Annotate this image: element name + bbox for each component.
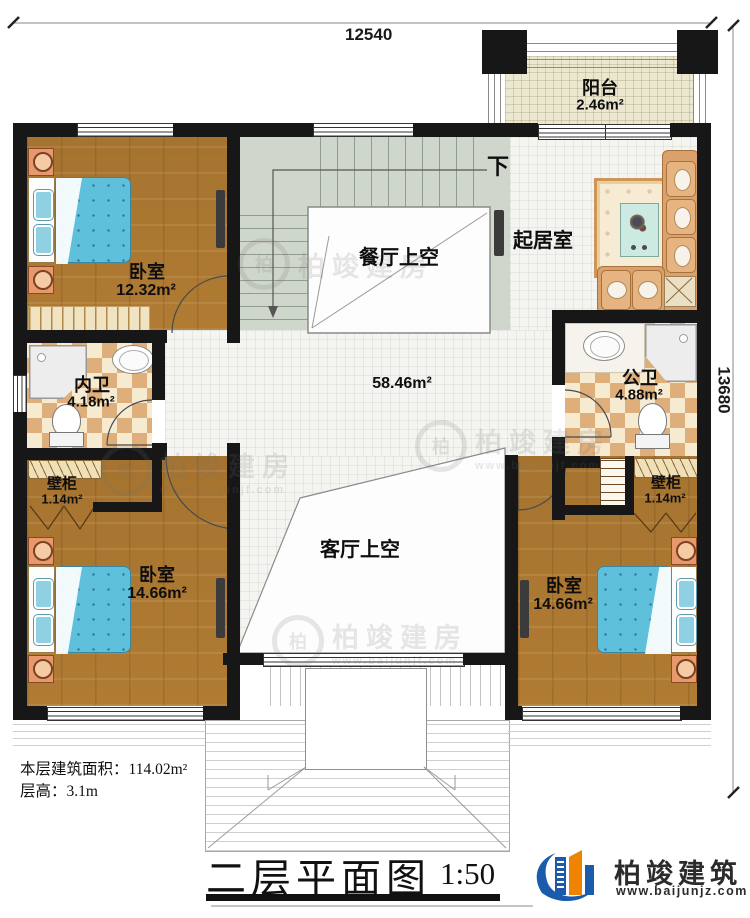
logo-tower-small [585, 865, 594, 895]
wall [680, 706, 711, 720]
title-scale: 1:50 [440, 856, 495, 892]
brand-website: www.baijunjz.com [616, 884, 748, 898]
bath-public-area: 4.88m² [615, 388, 663, 403]
window [77, 123, 175, 137]
wall [463, 653, 505, 665]
closet-left-label: 壁柜 [47, 477, 77, 492]
wall [697, 123, 711, 720]
wall [152, 343, 165, 400]
bedroom-tl-area: 12.32m² [116, 283, 176, 299]
stair-arrow [268, 306, 278, 318]
side-table-x [666, 278, 692, 303]
story-height-value: 3.1m [67, 783, 98, 800]
living-void-label: 客厅上空 [320, 540, 400, 560]
story-height-note: 层高：3.1m [20, 779, 98, 801]
balcony-label: 阳台 [582, 79, 618, 97]
bedroom-bl-area: 14.66m² [127, 586, 187, 602]
watermark: 柏 柏竣建房 www.baijunjf.com [415, 420, 611, 472]
window [13, 375, 27, 414]
wall [93, 502, 158, 512]
brand-logo-icon [528, 845, 610, 907]
watermark-logo-icon: 柏 [272, 615, 324, 667]
stairs-down-label: 下 [487, 156, 509, 178]
wall [552, 310, 565, 385]
window [313, 123, 415, 137]
balcony-area: 2.46m² [576, 98, 624, 113]
wall [565, 505, 634, 515]
floor-area-value: 114.02m² [129, 761, 188, 778]
living-room-label: 起居室 [513, 231, 573, 251]
wall [413, 123, 538, 137]
bath-inner-area: 4.18m² [67, 395, 115, 410]
bath-public-label: 公卫 [622, 369, 658, 387]
watermark-logo-icon: 柏 [415, 420, 467, 472]
wall [173, 123, 313, 137]
balcony-door [538, 124, 672, 140]
bedroom-tl-label: 卧室 [129, 263, 165, 281]
floor-area-label: 本层建筑面积： [20, 761, 129, 778]
window [522, 707, 682, 721]
balcony-door-track [605, 125, 606, 139]
wall [505, 455, 518, 720]
closet-right-label: 壁柜 [651, 476, 681, 491]
title-underline-shadow [211, 905, 533, 907]
dining-void-label: 餐厅上空 [359, 248, 439, 268]
bedroom-bl-label: 卧室 [139, 566, 175, 584]
watermark: 柏 柏竣建房 www.baijunjf.com [100, 444, 296, 496]
wall [552, 310, 697, 323]
hall-area: 58.46m² [372, 376, 432, 392]
watermark: 柏 柏竣建房 www.baijunjf.com [272, 615, 468, 667]
wall [13, 330, 167, 343]
closet-right-area: 1.14m² [644, 492, 685, 505]
closet-left-area: 1.14m² [41, 493, 82, 506]
story-height-label: 层高： [20, 783, 67, 800]
bath-inner-label: 内卫 [74, 376, 110, 394]
dimension-width: 12540 [345, 25, 392, 45]
logo-tower-orange [569, 850, 582, 895]
title-underline [206, 894, 500, 901]
bedroom-br-label: 卧室 [546, 577, 582, 595]
wall [13, 706, 47, 720]
floorplan-canvas: 柏 柏竣建房 柏 柏竣建房 www.baijunjf.com 柏 柏竣建房 ww… [0, 0, 750, 918]
floor-area-note: 本层建筑面积：114.02m² [20, 757, 187, 779]
canopy-hips [208, 767, 506, 848]
watermark-logo-icon: 柏 [100, 444, 152, 496]
bedroom-br-area: 14.66m² [533, 597, 593, 613]
wall [227, 123, 240, 343]
window [47, 707, 205, 721]
watermark-logo-icon: 柏 [238, 238, 290, 290]
dimension-height: 13680 [714, 366, 734, 413]
